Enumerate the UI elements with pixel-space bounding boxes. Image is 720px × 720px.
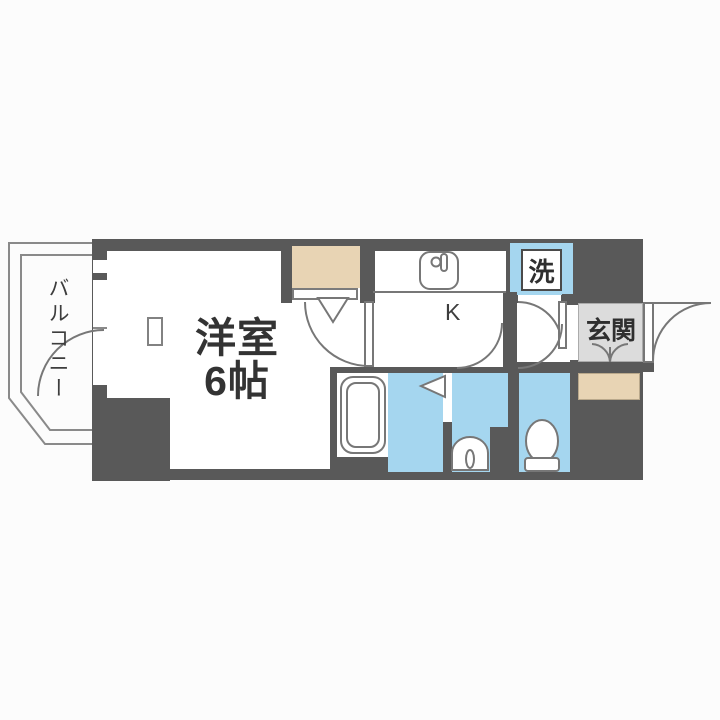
main-room-label: 洋室 6帖 [157, 317, 317, 403]
closet-right-wall [360, 239, 375, 303]
closet-door [292, 288, 358, 300]
balcony-label: バルコニー [42, 277, 72, 437]
closet [290, 246, 360, 288]
right-wall [643, 303, 654, 372]
washroom-corner-wall [490, 427, 508, 472]
bathroom-floor [388, 373, 443, 472]
small-window [93, 260, 107, 273]
entrance-door-arc [653, 303, 711, 361]
bottom-left-block [92, 398, 170, 481]
entrance-label: 玄関 [578, 311, 644, 347]
entrance-doorway-opening [568, 305, 578, 360]
toilet-floor [519, 373, 570, 472]
bathtub-zone [337, 373, 388, 457]
kitchen-hall-wall [503, 292, 517, 367]
main-room-label-line1: 洋室 [157, 317, 317, 360]
shoe-cabinet [578, 373, 640, 400]
floorplan: 洗 [0, 0, 720, 720]
washer-door-opening [518, 294, 561, 304]
washer-label: 洗 [528, 252, 554, 289]
main-room-label-line2: 6帖 [157, 360, 317, 403]
kitchen-label: K [445, 299, 460, 326]
balcony-window-opening [93, 280, 107, 385]
closet-left-wall [281, 239, 292, 303]
washing-machine: 洗 [521, 249, 562, 291]
hallway-floor [517, 303, 570, 362]
washer-right-stub [562, 294, 578, 305]
bathroom-door-strip [443, 373, 452, 422]
kitchen-floor [373, 251, 506, 367]
